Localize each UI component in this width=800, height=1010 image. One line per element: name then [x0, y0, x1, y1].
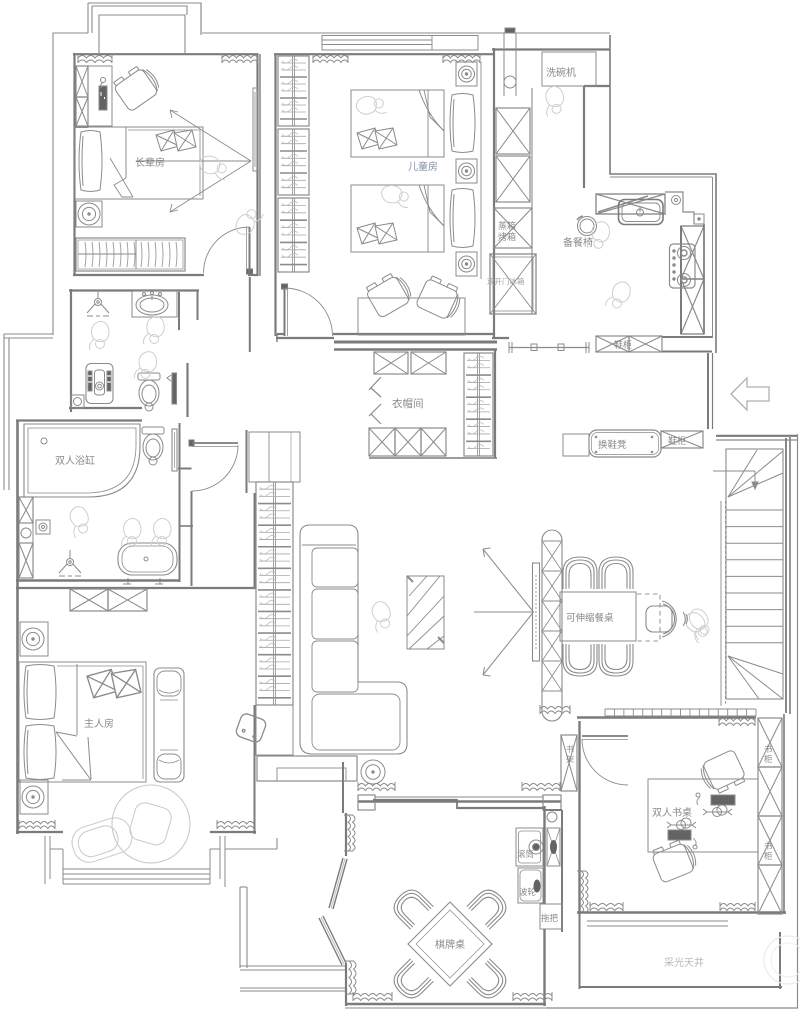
svg-text:可伸缩餐桌: 可伸缩餐桌: [566, 612, 614, 624]
svg-text:鞋柜: 鞋柜: [668, 435, 686, 446]
svg-text:书: 书: [566, 744, 574, 754]
svg-text:书: 书: [764, 841, 773, 851]
svg-text:棋牌桌: 棋牌桌: [435, 938, 465, 951]
svg-text:主人房: 主人房: [84, 717, 114, 730]
svg-text:换鞋凳: 换鞋凳: [598, 439, 627, 451]
svg-text:双开门冰箱: 双开门冰箱: [487, 276, 525, 286]
svg-text:拖把: 拖把: [541, 913, 559, 923]
svg-text:洗碗机: 洗碗机: [546, 66, 576, 79]
svg-text:双人书桌: 双人书桌: [652, 806, 692, 819]
svg-text:衣帽间: 衣帽间: [392, 397, 424, 410]
svg-text:采光天井: 采光天井: [664, 956, 704, 969]
svg-text:双人浴缸: 双人浴缸: [55, 454, 95, 467]
svg-text:架: 架: [566, 755, 574, 764]
svg-text:长辈房: 长辈房: [135, 156, 165, 169]
svg-text:书: 书: [764, 744, 773, 754]
svg-text:柜: 柜: [764, 754, 773, 764]
svg-text:蒸箱: 蒸箱: [498, 220, 516, 231]
svg-text:鞋柜: 鞋柜: [614, 339, 632, 350]
svg-text:柜: 柜: [764, 851, 773, 861]
svg-text:儿童房: 儿童房: [408, 160, 438, 173]
svg-text:滚筒: 滚筒: [517, 849, 534, 859]
svg-text:烤箱: 烤箱: [498, 231, 516, 242]
